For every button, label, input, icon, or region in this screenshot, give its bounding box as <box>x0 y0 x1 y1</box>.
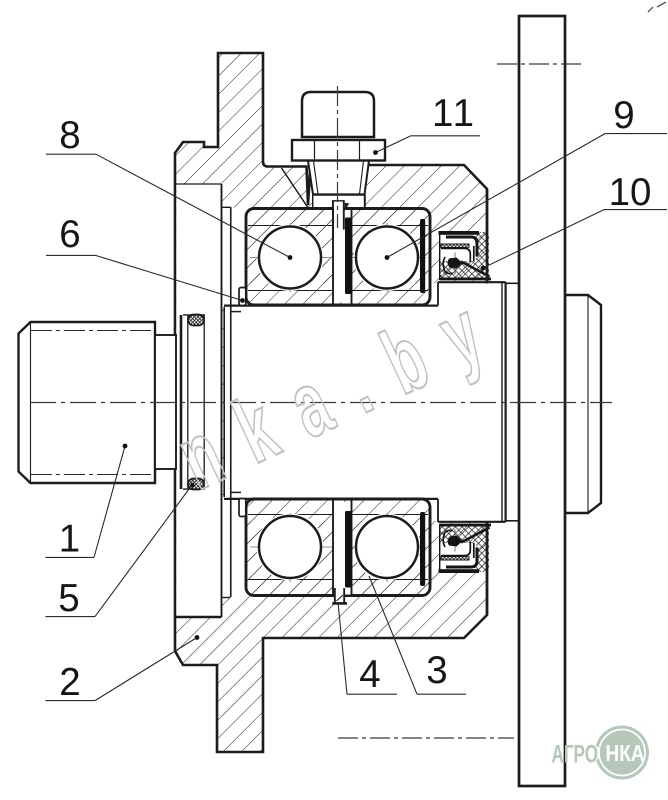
svg-text:1: 1 <box>59 518 80 561</box>
svg-text:3: 3 <box>426 649 447 692</box>
svg-text:4: 4 <box>359 653 380 696</box>
svg-text:9: 9 <box>613 94 634 137</box>
svg-text:8: 8 <box>59 114 80 157</box>
svg-text:11: 11 <box>432 92 476 135</box>
svg-text:10: 10 <box>609 171 652 214</box>
svg-text:6: 6 <box>59 213 80 256</box>
svg-text:5: 5 <box>58 577 79 620</box>
svg-text:АГРО: АГРО <box>552 741 599 769</box>
svg-text:НКА: НКА <box>606 740 645 766</box>
svg-text:2: 2 <box>59 661 80 704</box>
